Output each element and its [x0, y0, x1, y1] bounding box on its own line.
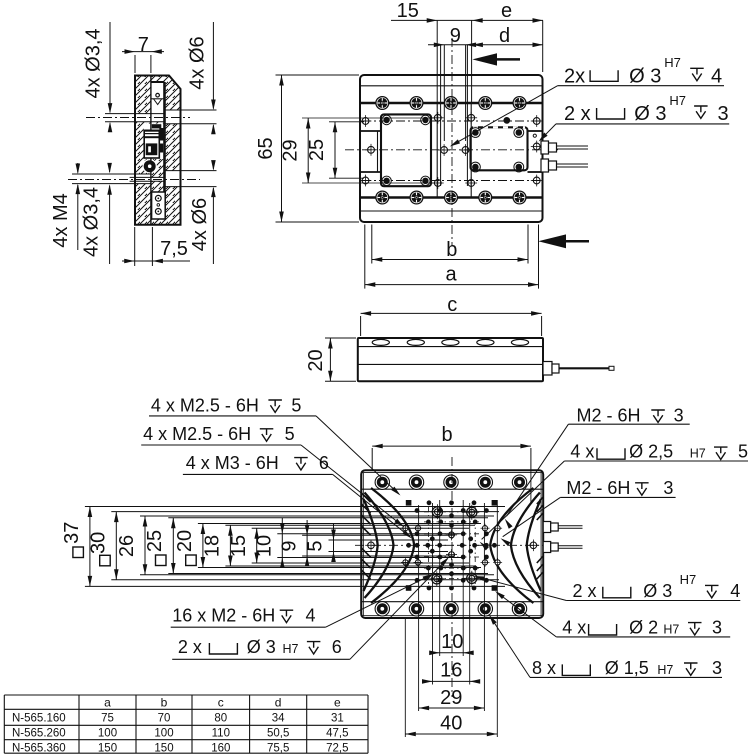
- svg-text:26: 26: [116, 535, 138, 557]
- svg-text:20: 20: [305, 349, 327, 371]
- svg-text:H7: H7: [664, 55, 681, 70]
- svg-text:80: 80: [214, 712, 227, 724]
- svg-text:d: d: [275, 695, 282, 709]
- svg-text:4x Ø3,4: 4x Ø3,4: [82, 28, 104, 98]
- svg-text:3: 3: [674, 405, 684, 425]
- svg-text:4x Ø6: 4x Ø6: [187, 36, 209, 89]
- svg-text:6: 6: [319, 453, 329, 473]
- svg-text:Ø 3: Ø 3: [643, 581, 672, 601]
- svg-text:Ø 3: Ø 3: [247, 637, 276, 657]
- svg-text:Ø 2: Ø 2: [629, 618, 658, 638]
- svg-text:20: 20: [174, 530, 196, 552]
- svg-text:4x Ø6: 4x Ø6: [189, 198, 211, 251]
- svg-text:a: a: [104, 695, 111, 709]
- svg-text:15: 15: [397, 0, 419, 22]
- svg-text:150: 150: [154, 742, 173, 754]
- svg-text:b: b: [161, 695, 168, 709]
- svg-text:50,5: 50,5: [267, 727, 289, 739]
- svg-text:16: 16: [440, 660, 462, 682]
- svg-text:M2 - 6H: M2 - 6H: [566, 478, 630, 498]
- svg-text:2 x: 2 x: [178, 637, 202, 657]
- svg-text:b: b: [446, 239, 457, 261]
- svg-text:b: b: [441, 424, 452, 446]
- svg-text:47,5: 47,5: [326, 727, 348, 739]
- svg-text:H7: H7: [657, 663, 673, 677]
- svg-text:4: 4: [711, 65, 722, 87]
- svg-text:H7: H7: [669, 93, 686, 108]
- svg-text:34: 34: [272, 712, 285, 724]
- svg-text:25: 25: [306, 139, 328, 161]
- svg-text:9: 9: [450, 25, 461, 47]
- svg-text:2 x: 2 x: [573, 581, 597, 601]
- svg-text:N-565.160: N-565.160: [12, 712, 66, 724]
- svg-text:8 x: 8 x: [532, 658, 556, 678]
- svg-text:5: 5: [291, 395, 301, 415]
- svg-text:10: 10: [441, 631, 463, 653]
- svg-text:3: 3: [712, 618, 722, 638]
- svg-text:9: 9: [278, 540, 300, 551]
- svg-text:150: 150: [98, 742, 117, 754]
- svg-text:Ø 2,5: Ø 2,5: [629, 442, 673, 462]
- svg-text:2 x: 2 x: [564, 103, 591, 125]
- svg-text:3: 3: [663, 478, 673, 498]
- svg-text:5: 5: [738, 442, 748, 462]
- svg-text:100: 100: [154, 727, 173, 739]
- svg-text:100: 100: [98, 727, 117, 739]
- svg-text:7: 7: [138, 34, 149, 56]
- svg-text:4: 4: [306, 606, 316, 626]
- svg-text:4 x M2.5 - 6H: 4 x M2.5 - 6H: [143, 424, 251, 444]
- svg-text:25: 25: [144, 530, 166, 552]
- svg-text:6: 6: [332, 637, 342, 657]
- svg-text:c: c: [218, 695, 224, 709]
- svg-text:4x Ø3,4: 4x Ø3,4: [81, 187, 103, 257]
- svg-text:65: 65: [255, 137, 277, 159]
- svg-text:110: 110: [212, 727, 230, 739]
- svg-text:4 x: 4 x: [562, 618, 586, 638]
- svg-text:d: d: [499, 25, 510, 47]
- svg-text:5: 5: [285, 424, 295, 444]
- svg-text:30: 30: [88, 532, 110, 554]
- svg-text:e: e: [334, 695, 341, 709]
- svg-text:3: 3: [718, 103, 729, 125]
- svg-text:29: 29: [279, 139, 301, 161]
- svg-text:H7: H7: [663, 623, 679, 637]
- svg-text:10: 10: [254, 535, 276, 557]
- svg-text:Ø 1,5: Ø 1,5: [605, 658, 649, 678]
- svg-text:75: 75: [101, 712, 114, 724]
- svg-text:H7: H7: [680, 572, 697, 587]
- svg-text:N-565.260: N-565.260: [12, 727, 66, 739]
- svg-text:Ø 3: Ø 3: [629, 65, 661, 87]
- svg-text:7,5: 7,5: [160, 238, 188, 260]
- svg-text:e: e: [501, 0, 512, 22]
- svg-text:16 x M2 - 6H: 16 x M2 - 6H: [172, 606, 275, 626]
- svg-text:H7: H7: [283, 642, 299, 656]
- svg-text:2x: 2x: [564, 65, 585, 87]
- svg-text:160: 160: [211, 742, 230, 754]
- svg-text:4: 4: [730, 581, 740, 601]
- svg-text:4 x M3 - 6H: 4 x M3 - 6H: [186, 453, 279, 473]
- svg-text:72,5: 72,5: [326, 742, 348, 754]
- svg-text:40: 40: [440, 713, 462, 735]
- svg-text:c: c: [447, 294, 457, 316]
- svg-text:M2 - 6H: M2 - 6H: [577, 405, 641, 425]
- svg-text:H7: H7: [690, 447, 706, 461]
- svg-text:4x M4: 4x M4: [50, 193, 72, 247]
- svg-text:31: 31: [331, 712, 344, 724]
- svg-text:Ø 3: Ø 3: [634, 103, 666, 125]
- svg-text:37: 37: [61, 522, 83, 544]
- svg-text:75,5: 75,5: [267, 742, 289, 754]
- svg-text:15: 15: [228, 535, 250, 557]
- svg-text:a: a: [445, 264, 457, 286]
- svg-text:4 x: 4 x: [570, 442, 594, 462]
- svg-text:29: 29: [440, 687, 462, 709]
- svg-text:5: 5: [305, 540, 327, 551]
- svg-text:N-565.360: N-565.360: [12, 742, 66, 754]
- svg-text:4 x M2.5 - 6H: 4 x M2.5 - 6H: [151, 395, 259, 415]
- svg-text:70: 70: [158, 712, 171, 724]
- svg-text:3: 3: [712, 658, 722, 678]
- svg-text:18: 18: [202, 535, 224, 557]
